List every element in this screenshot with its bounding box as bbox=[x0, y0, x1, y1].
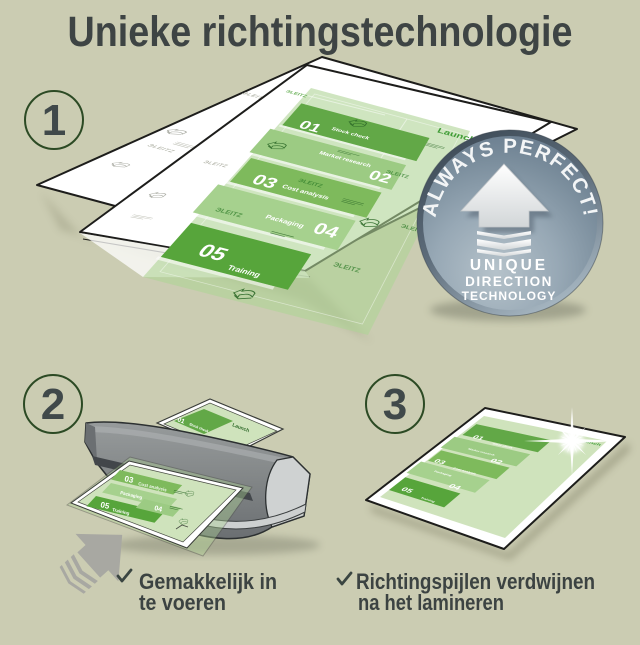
svg-text:3: 3 bbox=[383, 380, 407, 429]
svg-text:Unieke richtingstechnologie: Unieke richtingstechnologie bbox=[68, 9, 573, 56]
svg-text:1: 1 bbox=[42, 96, 66, 145]
svg-text:na het lamineren: na het lamineren bbox=[358, 590, 504, 615]
svg-text:TECHNOLOGY: TECHNOLOGY bbox=[462, 289, 557, 303]
svg-text:UNIQUE: UNIQUE bbox=[470, 257, 548, 274]
svg-text:2: 2 bbox=[41, 380, 65, 429]
svg-text:te voeren: te voeren bbox=[139, 590, 226, 615]
svg-text:DIRECTION: DIRECTION bbox=[465, 274, 553, 289]
